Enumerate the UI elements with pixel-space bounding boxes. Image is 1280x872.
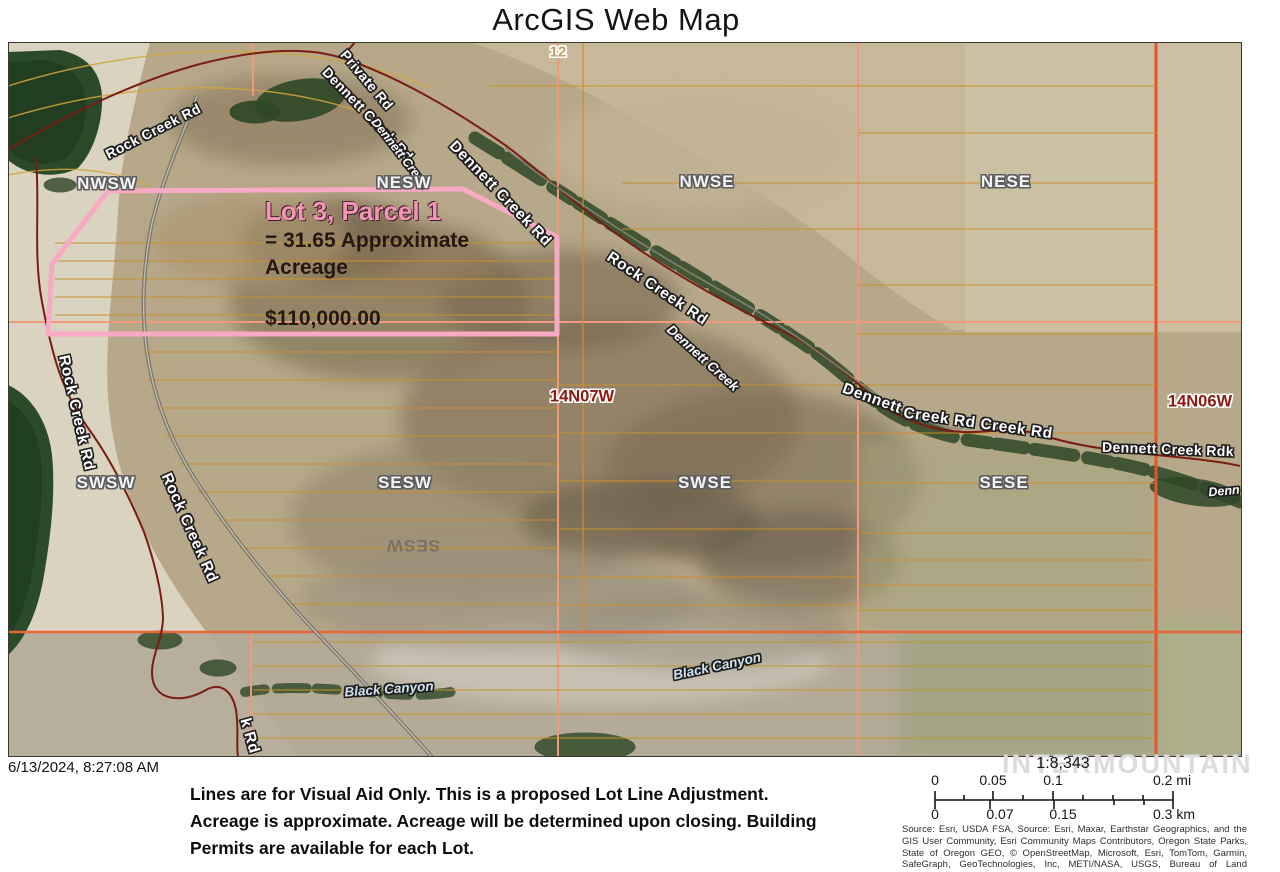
attribution-line-1: Source: Esri, USDA FSA, Source: Esri, Ma…	[902, 824, 1247, 836]
scale-bar	[0, 0, 1280, 872]
attribution-line-2: GIS User Community, Esri Community Maps …	[902, 836, 1247, 848]
attribution-line-3: State of Oregon GEO, © OpenStreetMap, Mi…	[902, 848, 1247, 860]
source-attribution: Source: Esri, USDA FSA, Source: Esri, Ma…	[902, 824, 1247, 871]
attribution-line-4: SafeGraph, GeoTechnologies, Inc, METI/NA…	[902, 859, 1247, 871]
map-stage: ArcGIS Web Map	[0, 0, 1280, 872]
